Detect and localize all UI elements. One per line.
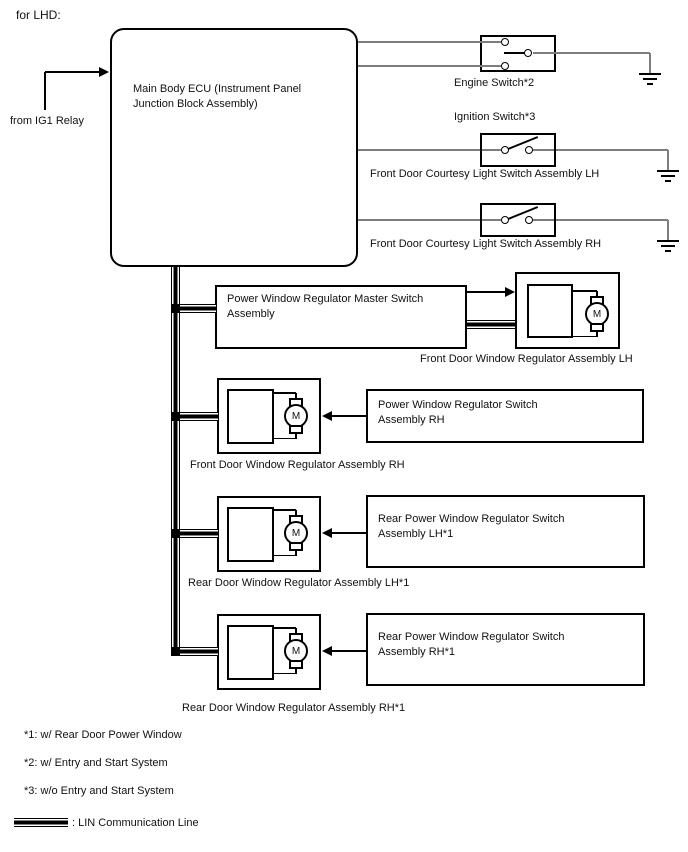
main-body-ecu-box xyxy=(110,28,358,267)
motor-lead xyxy=(573,336,597,338)
wire xyxy=(358,65,501,67)
footnote-2: *2: w/ Entry and Start System xyxy=(24,756,168,770)
lin-branch-line xyxy=(179,529,218,538)
motor-lead xyxy=(274,673,296,675)
ecu-label-line1: Main Body ECU (Instrument Panel xyxy=(133,82,301,97)
arrow-left-icon xyxy=(322,411,332,421)
lin-branch-line xyxy=(179,304,216,313)
ground-icon xyxy=(657,240,679,252)
front-rh-assembly-label: Front Door Window Regulator Assembly RH xyxy=(190,458,405,472)
lin-branch-line xyxy=(179,412,218,421)
terminal-icon xyxy=(524,49,532,57)
motor-lead xyxy=(274,555,296,557)
signal-line xyxy=(467,291,506,293)
motor-lead xyxy=(274,509,296,511)
lin-junction xyxy=(171,304,180,313)
arrow-right-icon xyxy=(505,287,515,297)
wire xyxy=(649,53,651,73)
wire xyxy=(482,219,501,221)
ecu-label-line2: Junction Block Assembly) xyxy=(133,97,301,112)
lin-junction xyxy=(171,647,180,656)
rear-lh-switch-label-line1: Rear Power Window Regulator Switch xyxy=(378,512,564,526)
wire xyxy=(556,149,668,151)
wire xyxy=(667,150,669,170)
lin-legend-label: : LIN Communication Line xyxy=(72,816,199,830)
wire xyxy=(358,41,501,43)
terminal-icon xyxy=(501,38,509,46)
ground-icon xyxy=(657,170,679,182)
wire xyxy=(358,149,480,151)
ground-icon xyxy=(639,73,661,85)
footnote-1: *1: w/ Rear Door Power Window xyxy=(24,728,182,742)
front-rh-switch-label-line1: Power Window Regulator Switch xyxy=(378,398,538,412)
ecu-label: Main Body ECU (Instrument Panel Junction… xyxy=(133,82,301,112)
switch-contact-line xyxy=(504,52,525,54)
courtesy-lh-label: Front Door Courtesy Light Switch Assembl… xyxy=(370,167,599,181)
courtesy-rh-label: Front Door Courtesy Light Switch Assembl… xyxy=(370,237,601,251)
wire xyxy=(533,52,650,54)
wire xyxy=(482,149,501,151)
wiring-diagram: for LHD: Main Body ECU (Instrument Panel… xyxy=(0,0,688,852)
wire xyxy=(358,219,480,221)
signal-line xyxy=(331,532,366,534)
ig1-wire xyxy=(44,72,46,110)
front-lh-inner-box xyxy=(527,284,573,338)
terminal-icon xyxy=(501,62,509,70)
rear-rh-switch-label-line2: Assembly RH*1 xyxy=(378,645,455,659)
rear-lh-switch-label-line2: Assembly LH*1 xyxy=(378,527,453,541)
engine-switch-label: Engine Switch*2 xyxy=(454,76,534,90)
front-rh-inner-box xyxy=(227,389,274,444)
rear-rh-assembly-label: Rear Door Window Regulator Assembly RH*1 xyxy=(182,701,405,715)
wire xyxy=(533,219,554,221)
rear-lh-assembly-label: Rear Door Window Regulator Assembly LH*1 xyxy=(188,576,409,590)
master-switch-label-line1: Power Window Regulator Master Switch xyxy=(227,292,423,306)
ig1-source-label: from IG1 Relay xyxy=(10,114,84,128)
lin-junction xyxy=(171,529,180,538)
lin-legend-sample xyxy=(14,818,68,827)
terminal-icon xyxy=(525,216,533,224)
arrow-left-icon xyxy=(322,528,332,538)
front-rh-switch-label-line2: Assembly RH xyxy=(378,413,445,427)
rear-rh-inner-box xyxy=(227,625,274,680)
terminal-icon xyxy=(525,146,533,154)
ig1-wire xyxy=(45,71,100,73)
motor-lead xyxy=(274,438,296,440)
variant-label: for LHD: xyxy=(16,8,61,22)
ig1-arrow-icon xyxy=(99,67,109,77)
lin-branch-line xyxy=(467,320,515,329)
footnote-3: *3: w/o Entry and Start System xyxy=(24,784,174,798)
motor-lead xyxy=(274,392,296,394)
master-switch-label-line2: Assembly xyxy=(227,307,275,321)
signal-line xyxy=(331,415,366,417)
ignition-switch-label: Ignition Switch*3 xyxy=(454,110,535,124)
signal-line xyxy=(331,650,366,652)
wire xyxy=(533,149,554,151)
lin-bus-line xyxy=(171,267,180,655)
lin-junction xyxy=(171,412,180,421)
rear-lh-inner-box xyxy=(227,507,274,562)
front-lh-assembly-label: Front Door Window Regulator Assembly LH xyxy=(420,352,633,366)
wire xyxy=(667,220,669,240)
motor-lead xyxy=(274,627,296,629)
arrow-left-icon xyxy=(322,646,332,656)
motor-lead xyxy=(573,290,597,292)
wire xyxy=(556,219,668,221)
rear-rh-switch-label-line1: Rear Power Window Regulator Switch xyxy=(378,630,564,644)
